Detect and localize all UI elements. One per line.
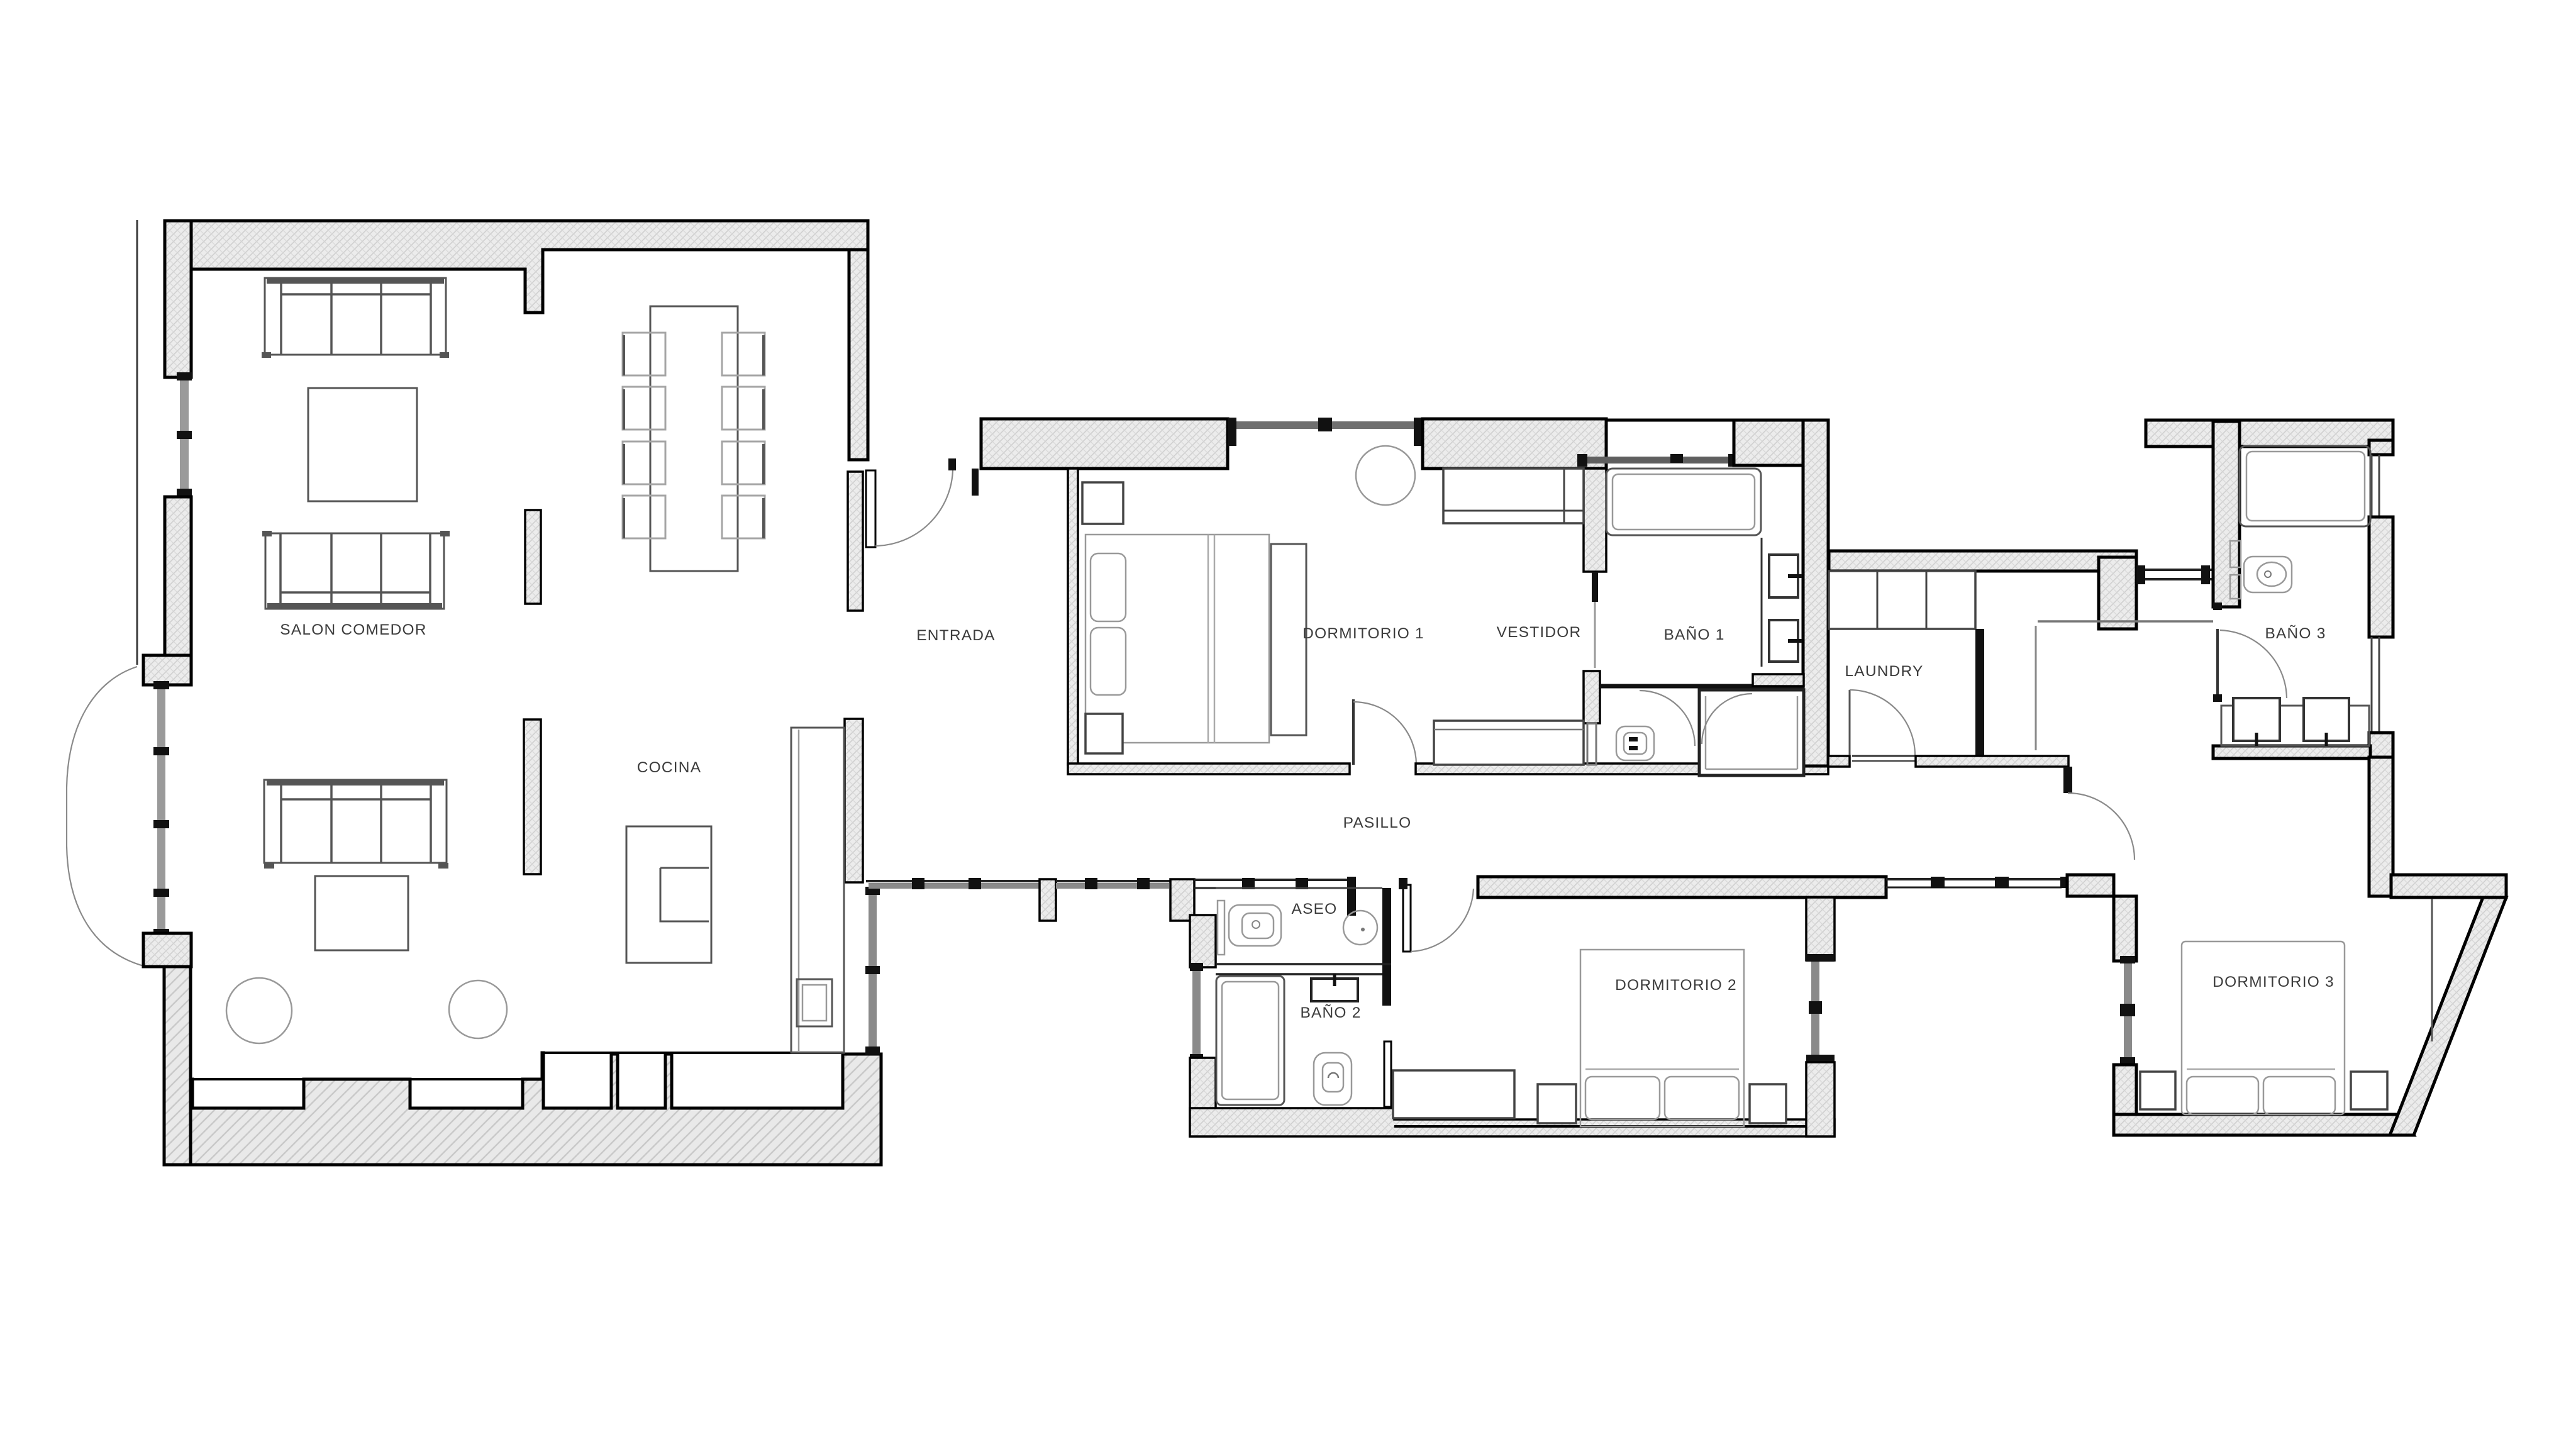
- svg-text:ENTRADA: ENTRADA: [916, 627, 995, 644]
- svg-text:BAÑO 1: BAÑO 1: [1663, 626, 1724, 643]
- svg-text:DORMITORIO 1: DORMITORIO 1: [1302, 625, 1424, 642]
- svg-text:COCINA: COCINA: [637, 759, 702, 776]
- svg-text:BAÑO 3: BAÑO 3: [2265, 625, 2326, 642]
- svg-text:SALON COMEDOR: SALON COMEDOR: [280, 621, 426, 638]
- svg-text:DORMITORIO 2: DORMITORIO 2: [1615, 977, 1737, 994]
- svg-text:BAÑO 2: BAÑO 2: [1300, 1004, 1361, 1021]
- svg-text:VESTIDOR: VESTIDOR: [1497, 624, 1582, 641]
- svg-text:LAUNDRY: LAUNDRY: [1845, 663, 1923, 680]
- svg-text:PASILLO: PASILLO: [1343, 814, 1412, 831]
- svg-text:ASEO: ASEO: [1292, 901, 1338, 918]
- svg-text:DORMITORIO 3: DORMITORIO 3: [2212, 974, 2334, 991]
